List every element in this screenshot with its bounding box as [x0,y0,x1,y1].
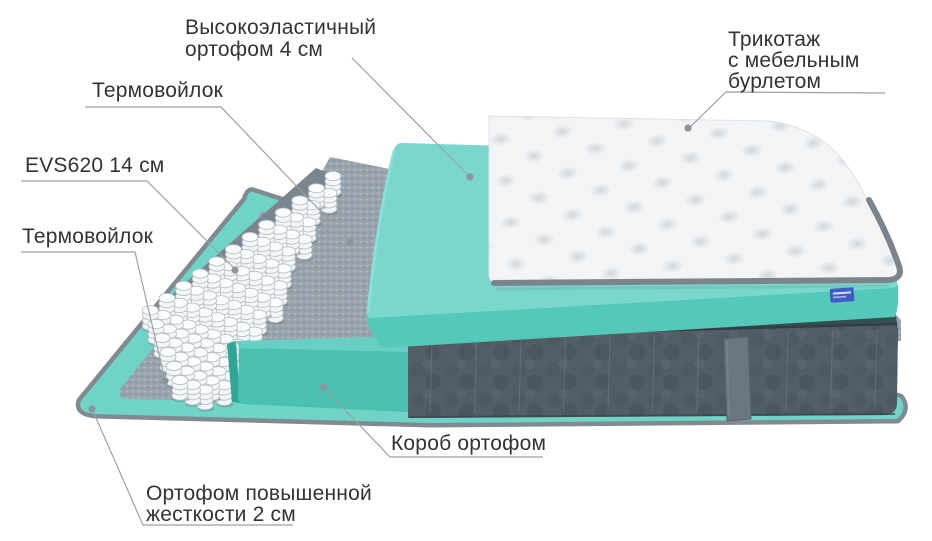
label-knit-line3: бурлетом [728,70,821,93]
label-base-foam-line1: Ортофом повышенной [146,482,372,505]
label-knit-cover: Трикотаж с мебельным бурлетом [728,28,860,93]
label-springs-line1: EVS620 14 см [25,154,164,177]
label-thermofelt-lower-line1: Термовойлок [22,225,154,248]
label-foam-box-line1: Короб ортофом [391,432,546,455]
leader-dot [684,124,691,131]
label-knit-line2: с мебельным [728,49,860,72]
leader-dot [231,266,238,273]
label-thermofelt-lower: Термовойлок [22,225,154,248]
label-springs: EVS620 14 см [25,154,164,177]
label-top-foam-line2: ортофом 4 см [185,38,323,61]
leader-dot [346,238,353,245]
base-handle-strap [724,337,751,421]
box-front [238,348,408,412]
label-base-foam: Ортофом повышенной жесткости 2 см [146,482,372,526]
leader-dot [319,383,326,390]
foam-box-layer [227,336,408,412]
label-top-foam: Высокоэластичный ортофом 4 см [185,16,376,61]
label-foam-box: Короб ортофом [391,432,546,455]
label-top-foam-line1: Высокоэластичный [185,16,376,39]
mattress-layers-diagram: Высокоэластичный ортофом 4 см Трикотаж с… [0,0,932,541]
brand-tag [830,287,855,303]
diagram-svg: Высокоэластичный ортофом 4 см Трикотаж с… [0,0,932,541]
quilt-texture [489,116,903,284]
knit-cover-layer [489,116,903,289]
leader-dot [466,173,473,180]
leader-dot [161,377,168,384]
leader-dot [88,405,95,412]
label-base-foam-line2: жесткости 2 см [146,503,296,526]
label-thermofelt-upper-line1: Термовойлок [92,79,224,102]
label-knit-line1: Трикотаж [728,28,820,51]
label-thermofelt-upper: Термовойлок [92,79,224,102]
